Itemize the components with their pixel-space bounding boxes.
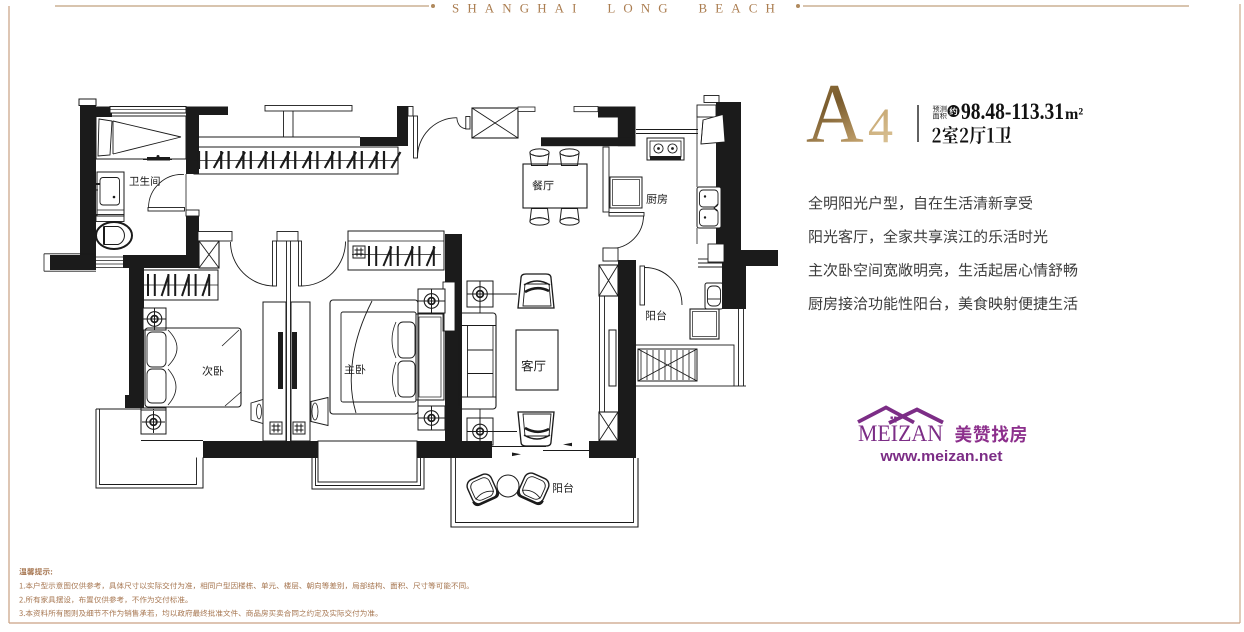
svg-text:SHANGHAI LONG BEACH: SHANGHAI LONG BEACH: [452, 1, 783, 16]
svg-text:4: 4: [868, 97, 893, 153]
svg-text:A: A: [806, 67, 864, 161]
svg-text:m²: m²: [1065, 106, 1083, 123]
svg-text:www.meizan.net: www.meizan.net: [879, 449, 1002, 465]
svg-text:MEIZAN: MEIZAN: [858, 421, 943, 446]
svg-text:98.48-113.31: 98.48-113.31: [961, 99, 1064, 125]
